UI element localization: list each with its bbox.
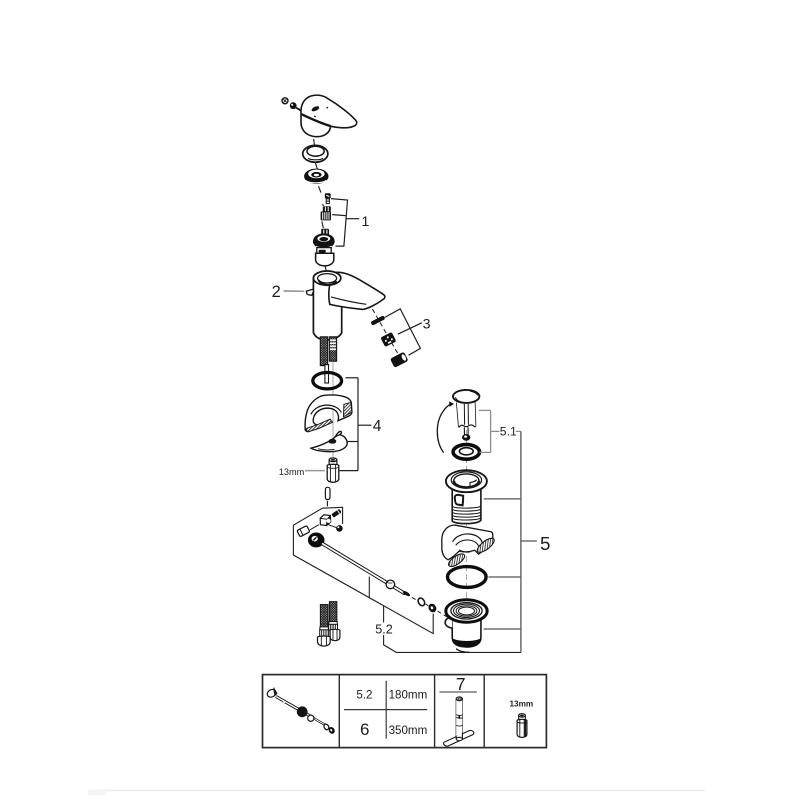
svg-text:13mm: 13mm bbox=[279, 467, 305, 477]
svg-text:180mm: 180mm bbox=[389, 688, 428, 701]
svg-text:3: 3 bbox=[423, 316, 431, 332]
svg-text:13mm: 13mm bbox=[510, 699, 534, 708]
svg-text:1: 1 bbox=[362, 214, 370, 230]
svg-text:5.2: 5.2 bbox=[356, 688, 372, 701]
svg-text:4: 4 bbox=[373, 418, 382, 435]
svg-text:350mm: 350mm bbox=[389, 724, 428, 737]
svg-text:5.1: 5.1 bbox=[500, 425, 517, 439]
svg-text:6: 6 bbox=[360, 720, 369, 739]
svg-text:5: 5 bbox=[540, 533, 550, 554]
svg-text:2: 2 bbox=[272, 283, 281, 301]
svg-text:5.2: 5.2 bbox=[375, 622, 393, 636]
